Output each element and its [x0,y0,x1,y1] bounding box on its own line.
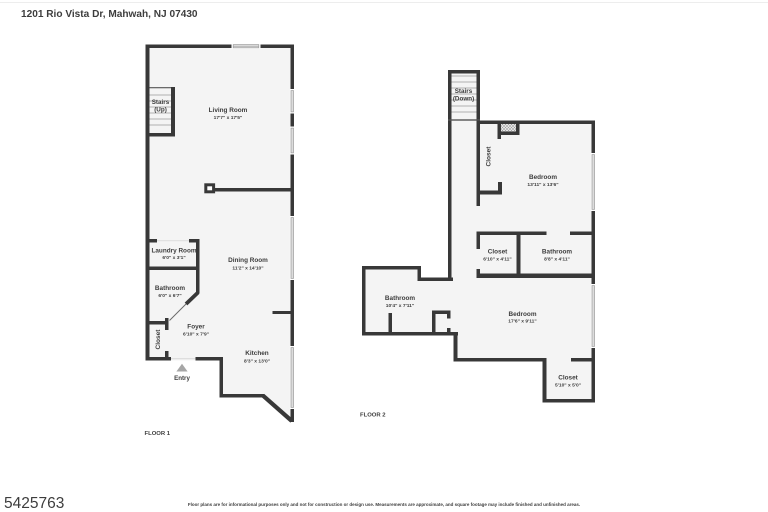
svg-text:6'10" x 7'9": 6'10" x 7'9" [183,332,209,338]
svg-text:Stairs: Stairs [455,88,473,95]
svg-text:11'2" x 14'10": 11'2" x 14'10" [232,265,263,271]
svg-text:FLOOR 1: FLOOR 1 [145,431,171,437]
svg-text:17'6" x 9'11": 17'6" x 9'11" [508,319,536,325]
svg-text:6'0" x 3'1": 6'0" x 3'1" [162,255,185,261]
svg-text:Bedroom: Bedroom [508,311,536,318]
svg-text:Closet: Closet [155,329,162,350]
svg-text:17'7" x 17'5": 17'7" x 17'5" [214,115,243,121]
svg-text:Closet: Closet [558,375,578,382]
svg-text:1201 Rio Vista Dr, Mahwah, NJ: 1201 Rio Vista Dr, Mahwah, NJ 07430 [21,9,198,20]
svg-text:10'4" x 7'11": 10'4" x 7'11" [386,303,414,309]
svg-text:8'8" x 4'11": 8'8" x 4'11" [544,256,570,262]
svg-text:Kitchen: Kitchen [245,350,269,357]
svg-text:Bathroom: Bathroom [385,295,415,302]
svg-text:FLOOR 2: FLOOR 2 [360,413,386,419]
svg-text:Entry: Entry [174,375,190,382]
svg-text:Laundry Room: Laundry Room [151,248,196,255]
svg-text:Bathroom: Bathroom [542,249,572,256]
svg-text:Dining Room: Dining Room [228,257,268,264]
svg-text:(Up): (Up) [154,107,167,114]
svg-text:Floor plans are for informatio: Floor plans are for informational purpos… [188,502,580,507]
svg-text:6'0" x 6'7": 6'0" x 6'7" [158,293,181,299]
svg-text:Living Room: Living Room [209,107,248,114]
svg-text:Bedroom: Bedroom [529,174,557,181]
svg-text:5425763: 5425763 [4,495,64,512]
svg-text:6'10" x 4'11": 6'10" x 4'11" [483,256,511,262]
svg-text:Bathroom: Bathroom [155,285,185,292]
svg-text:Closet: Closet [488,249,508,256]
svg-text:Stairs: Stairs [152,99,170,106]
svg-text:(Down): (Down) [453,96,474,103]
svg-text:5'10" x 5'0": 5'10" x 5'0" [555,382,581,388]
svg-text:Closet: Closet [486,146,493,167]
svg-text:13'11" x 13'6": 13'11" x 13'6" [527,182,558,188]
svg-text:Foyer: Foyer [187,324,205,331]
svg-text:8'3" x 13'0": 8'3" x 13'0" [244,358,270,364]
